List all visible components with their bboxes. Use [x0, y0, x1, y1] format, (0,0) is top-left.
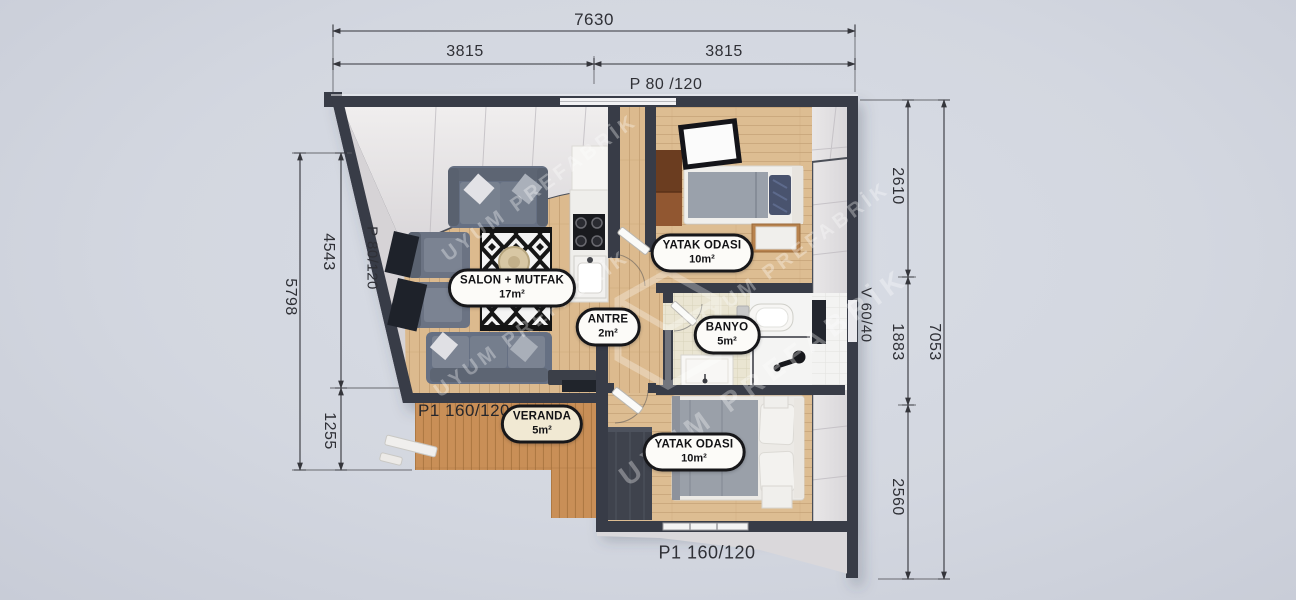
room-label-banyo: BANYO 5m²	[694, 316, 761, 355]
room-area: 5m²	[706, 335, 749, 348]
wall-banyo-left-upper	[663, 293, 673, 303]
dim-left-upper: 4543	[319, 233, 337, 271]
window-bottom-p1	[663, 523, 748, 530]
skylight-window	[681, 121, 739, 167]
dim-right-bottom: 2560	[888, 478, 906, 516]
label-left-window: P 80/120	[364, 226, 381, 290]
bedroom2-nightstand-top	[764, 396, 788, 408]
label-right-window: V 60/40	[858, 287, 875, 342]
room-name: YATAK ODASI	[655, 439, 734, 453]
dim-top-left-half: 3815	[446, 43, 484, 61]
bedroom2-nightstand-bottom	[762, 486, 792, 508]
bedroom1-bed	[684, 166, 803, 224]
room-area: 10m²	[663, 253, 742, 266]
room-label-yatak-odasi-2: YATAK ODASI 10m²	[643, 433, 746, 472]
dim-right-middle: 1883	[888, 323, 906, 361]
room-area: 5m²	[513, 424, 571, 437]
room-name: SALON + MUTFAK	[460, 275, 564, 289]
room-name: BANYO	[706, 322, 749, 336]
veranda-door-lintel	[562, 380, 596, 392]
room-area: 2m²	[588, 327, 629, 340]
room-area: 17m²	[460, 288, 564, 301]
room-label-yatak-odasi-1: YATAK ODASI 10m²	[651, 234, 754, 273]
label-veranda-door: P1 160/120	[418, 401, 510, 421]
dim-right-top: 2610	[888, 167, 906, 205]
veranda-step-small	[379, 452, 402, 465]
room-label-salon: SALON + MUTFAK 17m²	[448, 269, 576, 308]
room-name: ANTRE	[588, 314, 629, 328]
wall-veranda-side	[596, 343, 608, 532]
dim-left-lower: 1255	[320, 412, 338, 450]
room-area: 10m²	[655, 452, 734, 465]
wall-bedroom1-left	[645, 106, 656, 252]
floor-plan-canvas: UYUM PREFABRİK UYUM PREFABRİK UYUM PREFA…	[0, 0, 1296, 600]
wall-antre-bedroom2-right	[648, 383, 656, 393]
dim-top-right-half: 3815	[705, 43, 743, 61]
label-bottom-door: P1 160/120	[658, 543, 755, 564]
dim-top-total: 7630	[574, 10, 614, 30]
room-name: VERANDA	[513, 411, 571, 425]
label-top-window: P 80 /120	[630, 76, 703, 94]
dim-right-total: 7053	[925, 323, 943, 361]
room-label-antre: ANTRE 2m²	[576, 308, 641, 347]
dim-left-total: 5798	[281, 278, 299, 316]
room-label-veranda: VERANDA 5m²	[501, 405, 583, 444]
kitchen-stove-icon	[573, 214, 605, 250]
room-name: YATAK ODASI	[663, 240, 742, 254]
